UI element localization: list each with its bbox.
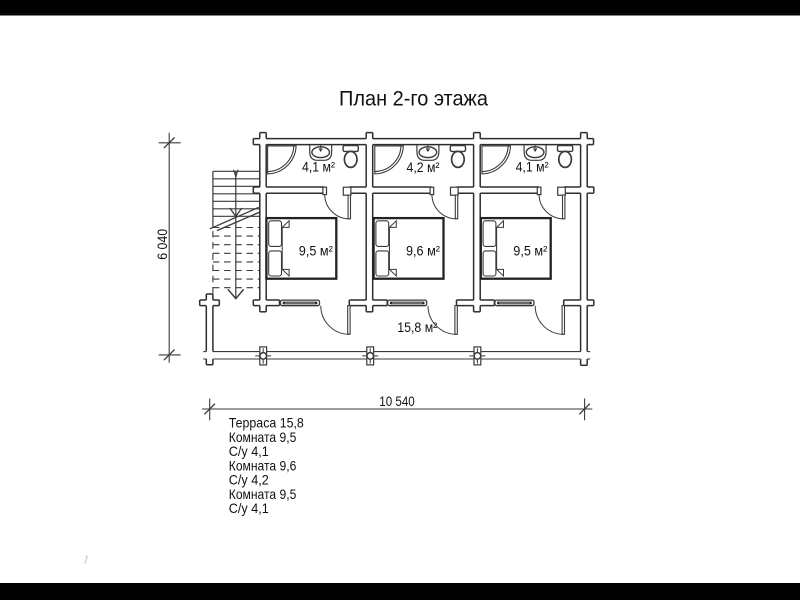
svg-text:С/у 4,1: С/у 4,1 bbox=[229, 500, 269, 516]
svg-text:10 540: 10 540 bbox=[379, 393, 415, 409]
svg-text:15,8 м²: 15,8 м² bbox=[397, 319, 437, 335]
svg-text:9,5 м²: 9,5 м² bbox=[299, 242, 333, 258]
svg-text:4,1 м²: 4,1 м² bbox=[302, 158, 335, 174]
svg-text:4,1 м²: 4,1 м² bbox=[516, 158, 549, 174]
svg-text:План 2-го этажа: План 2-го этажа bbox=[339, 86, 488, 110]
svg-text:4,2 м²: 4,2 м² bbox=[407, 159, 440, 175]
svg-text:6 040: 6 040 bbox=[154, 229, 170, 260]
svg-text:9,6 м²: 9,6 м² bbox=[406, 242, 440, 258]
svg-text:9,5 м²: 9,5 м² bbox=[513, 242, 547, 258]
